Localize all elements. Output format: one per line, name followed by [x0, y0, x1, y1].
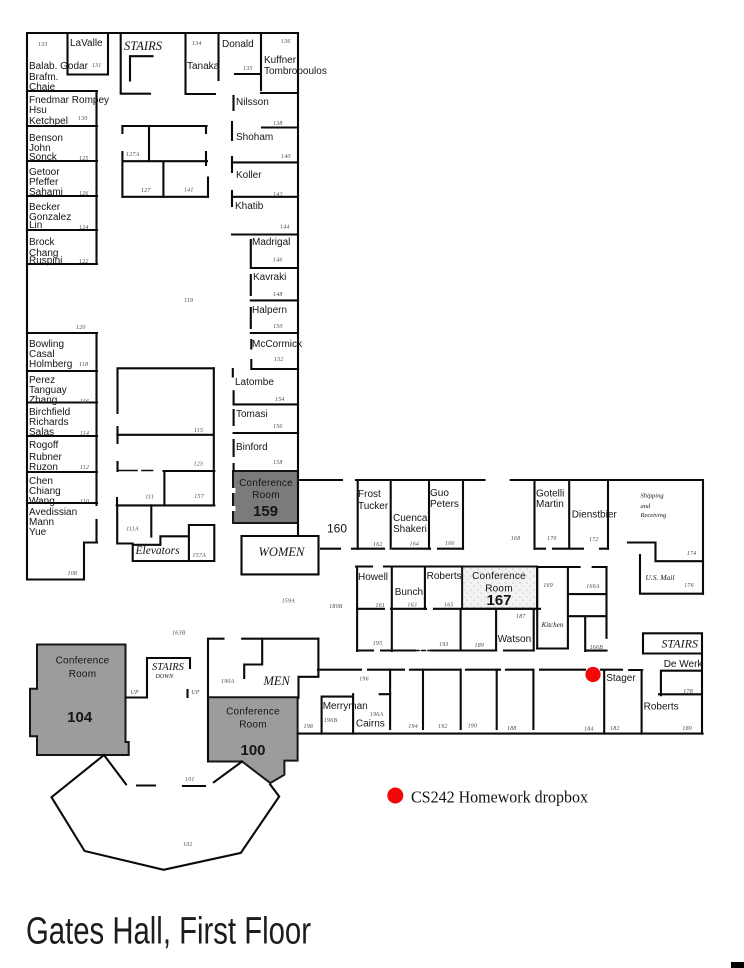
- svg-text:Guo: Guo: [430, 488, 449, 499]
- svg-text:Donald: Donald: [222, 39, 254, 50]
- svg-text:LaValle: LaValle: [70, 38, 103, 49]
- svg-text:Sahami: Sahami: [29, 187, 63, 198]
- svg-text:160: 160: [327, 522, 347, 536]
- svg-text:159A: 159A: [282, 599, 296, 605]
- svg-text:115: 115: [194, 428, 203, 434]
- svg-text:Hsu: Hsu: [29, 105, 47, 116]
- svg-text:Receiving: Receiving: [640, 512, 667, 519]
- svg-text:180: 180: [682, 726, 692, 732]
- svg-text:112: 112: [80, 465, 89, 471]
- svg-text:120: 120: [76, 325, 86, 331]
- svg-text:De Werk: De Werk: [664, 659, 704, 670]
- svg-text:116: 116: [80, 399, 89, 405]
- svg-text:Salas: Salas: [29, 427, 54, 438]
- svg-text:Shipping: Shipping: [641, 493, 665, 500]
- svg-text:158: 158: [273, 460, 283, 466]
- svg-text:Yue: Yue: [29, 527, 47, 538]
- svg-text:193: 193: [439, 642, 449, 648]
- svg-text:Gates Hall, First Floor: Gates Hall, First Floor: [26, 911, 311, 953]
- svg-text:111A: 111A: [126, 526, 139, 532]
- svg-text:Roberts: Roberts: [427, 571, 462, 582]
- svg-text:Kuffner: Kuffner: [264, 55, 297, 66]
- svg-text:192: 192: [438, 724, 448, 730]
- svg-text:124: 124: [79, 225, 89, 231]
- svg-text:Bunch: Bunch: [395, 587, 423, 598]
- svg-text:102: 102: [183, 842, 193, 848]
- svg-text:Zhang: Zhang: [29, 395, 57, 406]
- svg-text:Holmberg: Holmberg: [29, 359, 72, 370]
- svg-text:127: 127: [141, 188, 151, 194]
- svg-text:Chaje: Chaje: [29, 82, 56, 93]
- svg-text:Conference: Conference: [226, 707, 280, 718]
- svg-text:148: 148: [273, 292, 283, 298]
- svg-text:UP: UP: [131, 690, 140, 696]
- svg-text:STAIRS: STAIRS: [662, 637, 698, 651]
- svg-text:133: 133: [38, 42, 48, 48]
- svg-text:114: 114: [80, 431, 89, 437]
- svg-text:144: 144: [280, 225, 290, 231]
- svg-text:Tombropoulos: Tombropoulos: [264, 66, 327, 77]
- svg-text:187: 187: [516, 614, 526, 620]
- svg-text:180B: 180B: [329, 604, 343, 610]
- svg-text:157: 157: [194, 494, 204, 500]
- svg-text:Shoham: Shoham: [236, 132, 273, 143]
- svg-text:165: 165: [444, 603, 454, 609]
- svg-text:146: 146: [273, 258, 283, 264]
- svg-text:138: 138: [273, 121, 283, 127]
- svg-text:Tucker: Tucker: [358, 501, 389, 512]
- svg-text:152: 152: [274, 357, 284, 363]
- svg-text:108: 108: [68, 571, 78, 577]
- svg-text:Elevators: Elevators: [135, 545, 181, 557]
- svg-text:195: 195: [373, 641, 383, 647]
- svg-text:190: 190: [468, 723, 478, 729]
- svg-text:134: 134: [192, 41, 202, 47]
- svg-text:167: 167: [486, 592, 511, 609]
- svg-text:127A: 127A: [126, 152, 140, 158]
- svg-text:174: 174: [687, 551, 697, 557]
- svg-text:Gotelli: Gotelli: [536, 489, 564, 500]
- svg-text:135: 135: [243, 66, 253, 72]
- svg-text:164: 164: [410, 542, 420, 548]
- svg-text:131: 131: [92, 63, 102, 69]
- svg-text:125: 125: [79, 156, 89, 162]
- svg-text:Conference: Conference: [472, 571, 526, 582]
- svg-text:Rogoff: Rogoff: [29, 440, 59, 451]
- svg-text:Nilsson: Nilsson: [236, 97, 269, 108]
- svg-text:130: 130: [78, 116, 88, 122]
- svg-text:U.S. Mail: U.S. Mail: [646, 573, 675, 582]
- svg-text:Conference: Conference: [239, 478, 293, 489]
- svg-text:154: 154: [275, 397, 285, 403]
- svg-text:161: 161: [376, 603, 386, 609]
- svg-text:Tanaka: Tanaka: [187, 61, 220, 72]
- svg-text:176: 176: [684, 583, 694, 589]
- svg-text:194: 194: [408, 724, 418, 730]
- svg-text:110: 110: [80, 499, 89, 505]
- svg-text:162: 162: [373, 542, 383, 548]
- svg-text:169: 169: [543, 583, 553, 589]
- svg-text:Koller: Koller: [236, 170, 262, 181]
- svg-text:Kavraki: Kavraki: [253, 272, 286, 283]
- svg-text:Binford: Binford: [236, 442, 268, 453]
- svg-text:Room: Room: [252, 490, 279, 501]
- svg-text:Merryman: Merryman: [323, 701, 368, 712]
- svg-text:100: 100: [240, 742, 265, 759]
- svg-text:Cairns: Cairns: [356, 719, 385, 730]
- svg-text:166A: 166A: [586, 584, 600, 590]
- svg-text:172: 172: [589, 537, 599, 543]
- svg-text:Peters: Peters: [430, 499, 459, 510]
- svg-text:196B: 196B: [324, 718, 338, 724]
- svg-text:Ruzon: Ruzon: [29, 462, 58, 473]
- svg-text:Madrigal: Madrigal: [252, 237, 290, 248]
- svg-text:101: 101: [185, 777, 195, 783]
- svg-text:104: 104: [67, 709, 93, 726]
- svg-text:WOMEN: WOMEN: [259, 545, 305, 559]
- svg-text:Halpern: Halpern: [252, 305, 287, 316]
- svg-text:170: 170: [547, 536, 557, 542]
- svg-text:140: 140: [281, 154, 291, 160]
- svg-text:Room: Room: [69, 669, 96, 680]
- svg-text:Frost: Frost: [358, 489, 381, 500]
- svg-text:136: 136: [281, 39, 291, 45]
- svg-text:Latombe: Latombe: [235, 377, 274, 388]
- svg-text:141: 141: [184, 188, 194, 194]
- svg-text:Howell: Howell: [358, 572, 388, 583]
- svg-text:142: 142: [273, 192, 283, 198]
- svg-text:MEN: MEN: [263, 674, 291, 688]
- svg-text:Tomasi: Tomasi: [236, 409, 268, 420]
- svg-text:159: 159: [253, 503, 278, 520]
- svg-text:Shakeri: Shakeri: [393, 524, 427, 535]
- svg-text:119: 119: [184, 298, 193, 304]
- svg-text:190A: 190A: [221, 679, 235, 685]
- svg-text:157A: 157A: [193, 553, 207, 559]
- svg-text:166: 166: [445, 541, 455, 547]
- svg-text:168: 168: [511, 536, 521, 542]
- svg-text:198: 198: [304, 724, 314, 730]
- svg-text:Ketchpel: Ketchpel: [29, 116, 68, 127]
- svg-text:122: 122: [79, 259, 89, 265]
- svg-text:Wang: Wang: [29, 496, 55, 507]
- svg-text:STAIRS: STAIRS: [152, 662, 185, 673]
- svg-text:163B: 163B: [172, 631, 186, 637]
- svg-text:Kitchen: Kitchen: [541, 621, 564, 629]
- svg-text:Sonck: Sonck: [29, 152, 58, 163]
- svg-text:Conference: Conference: [56, 656, 110, 667]
- svg-text:and: and: [641, 503, 652, 510]
- svg-text:Balab. Godar: Balab. Godar: [29, 61, 89, 72]
- svg-text:182: 182: [610, 726, 620, 732]
- svg-text:Lin: Lin: [29, 220, 42, 231]
- svg-text:150: 150: [273, 324, 283, 330]
- svg-text:166B: 166B: [590, 645, 604, 651]
- svg-text:Brock: Brock: [29, 237, 56, 248]
- svg-text:196A: 196A: [370, 712, 384, 718]
- svg-text:189: 189: [475, 643, 485, 649]
- svg-text:McCormick: McCormick: [252, 339, 303, 350]
- svg-text:188: 188: [507, 726, 517, 732]
- svg-text:Dienstbier: Dienstbier: [572, 510, 618, 521]
- svg-text:156: 156: [273, 424, 283, 430]
- svg-text:Roberts: Roberts: [644, 702, 679, 713]
- svg-text:Martin: Martin: [536, 499, 564, 510]
- svg-text:123: 123: [194, 462, 204, 468]
- svg-text:118: 118: [79, 362, 88, 368]
- svg-text:Khatib: Khatib: [235, 201, 264, 212]
- svg-text:Ruspini: Ruspini: [29, 256, 62, 267]
- svg-text:CS242 Homework dropbox: CS242 Homework dropbox: [411, 788, 588, 807]
- svg-text:163: 163: [407, 603, 417, 609]
- svg-text:Stager: Stager: [606, 673, 636, 684]
- svg-text:Room: Room: [239, 720, 266, 731]
- svg-text:Cuenca: Cuenca: [393, 513, 428, 524]
- svg-text:184: 184: [584, 727, 594, 733]
- svg-text:178: 178: [683, 689, 693, 695]
- svg-text:111: 111: [145, 495, 154, 501]
- svg-text:UP: UP: [191, 690, 200, 696]
- svg-text:DOWN: DOWN: [155, 674, 175, 680]
- svg-text:Watson: Watson: [498, 634, 532, 645]
- svg-text:STAIRS: STAIRS: [124, 39, 163, 53]
- svg-text:126: 126: [79, 191, 89, 197]
- svg-text:196: 196: [359, 677, 369, 683]
